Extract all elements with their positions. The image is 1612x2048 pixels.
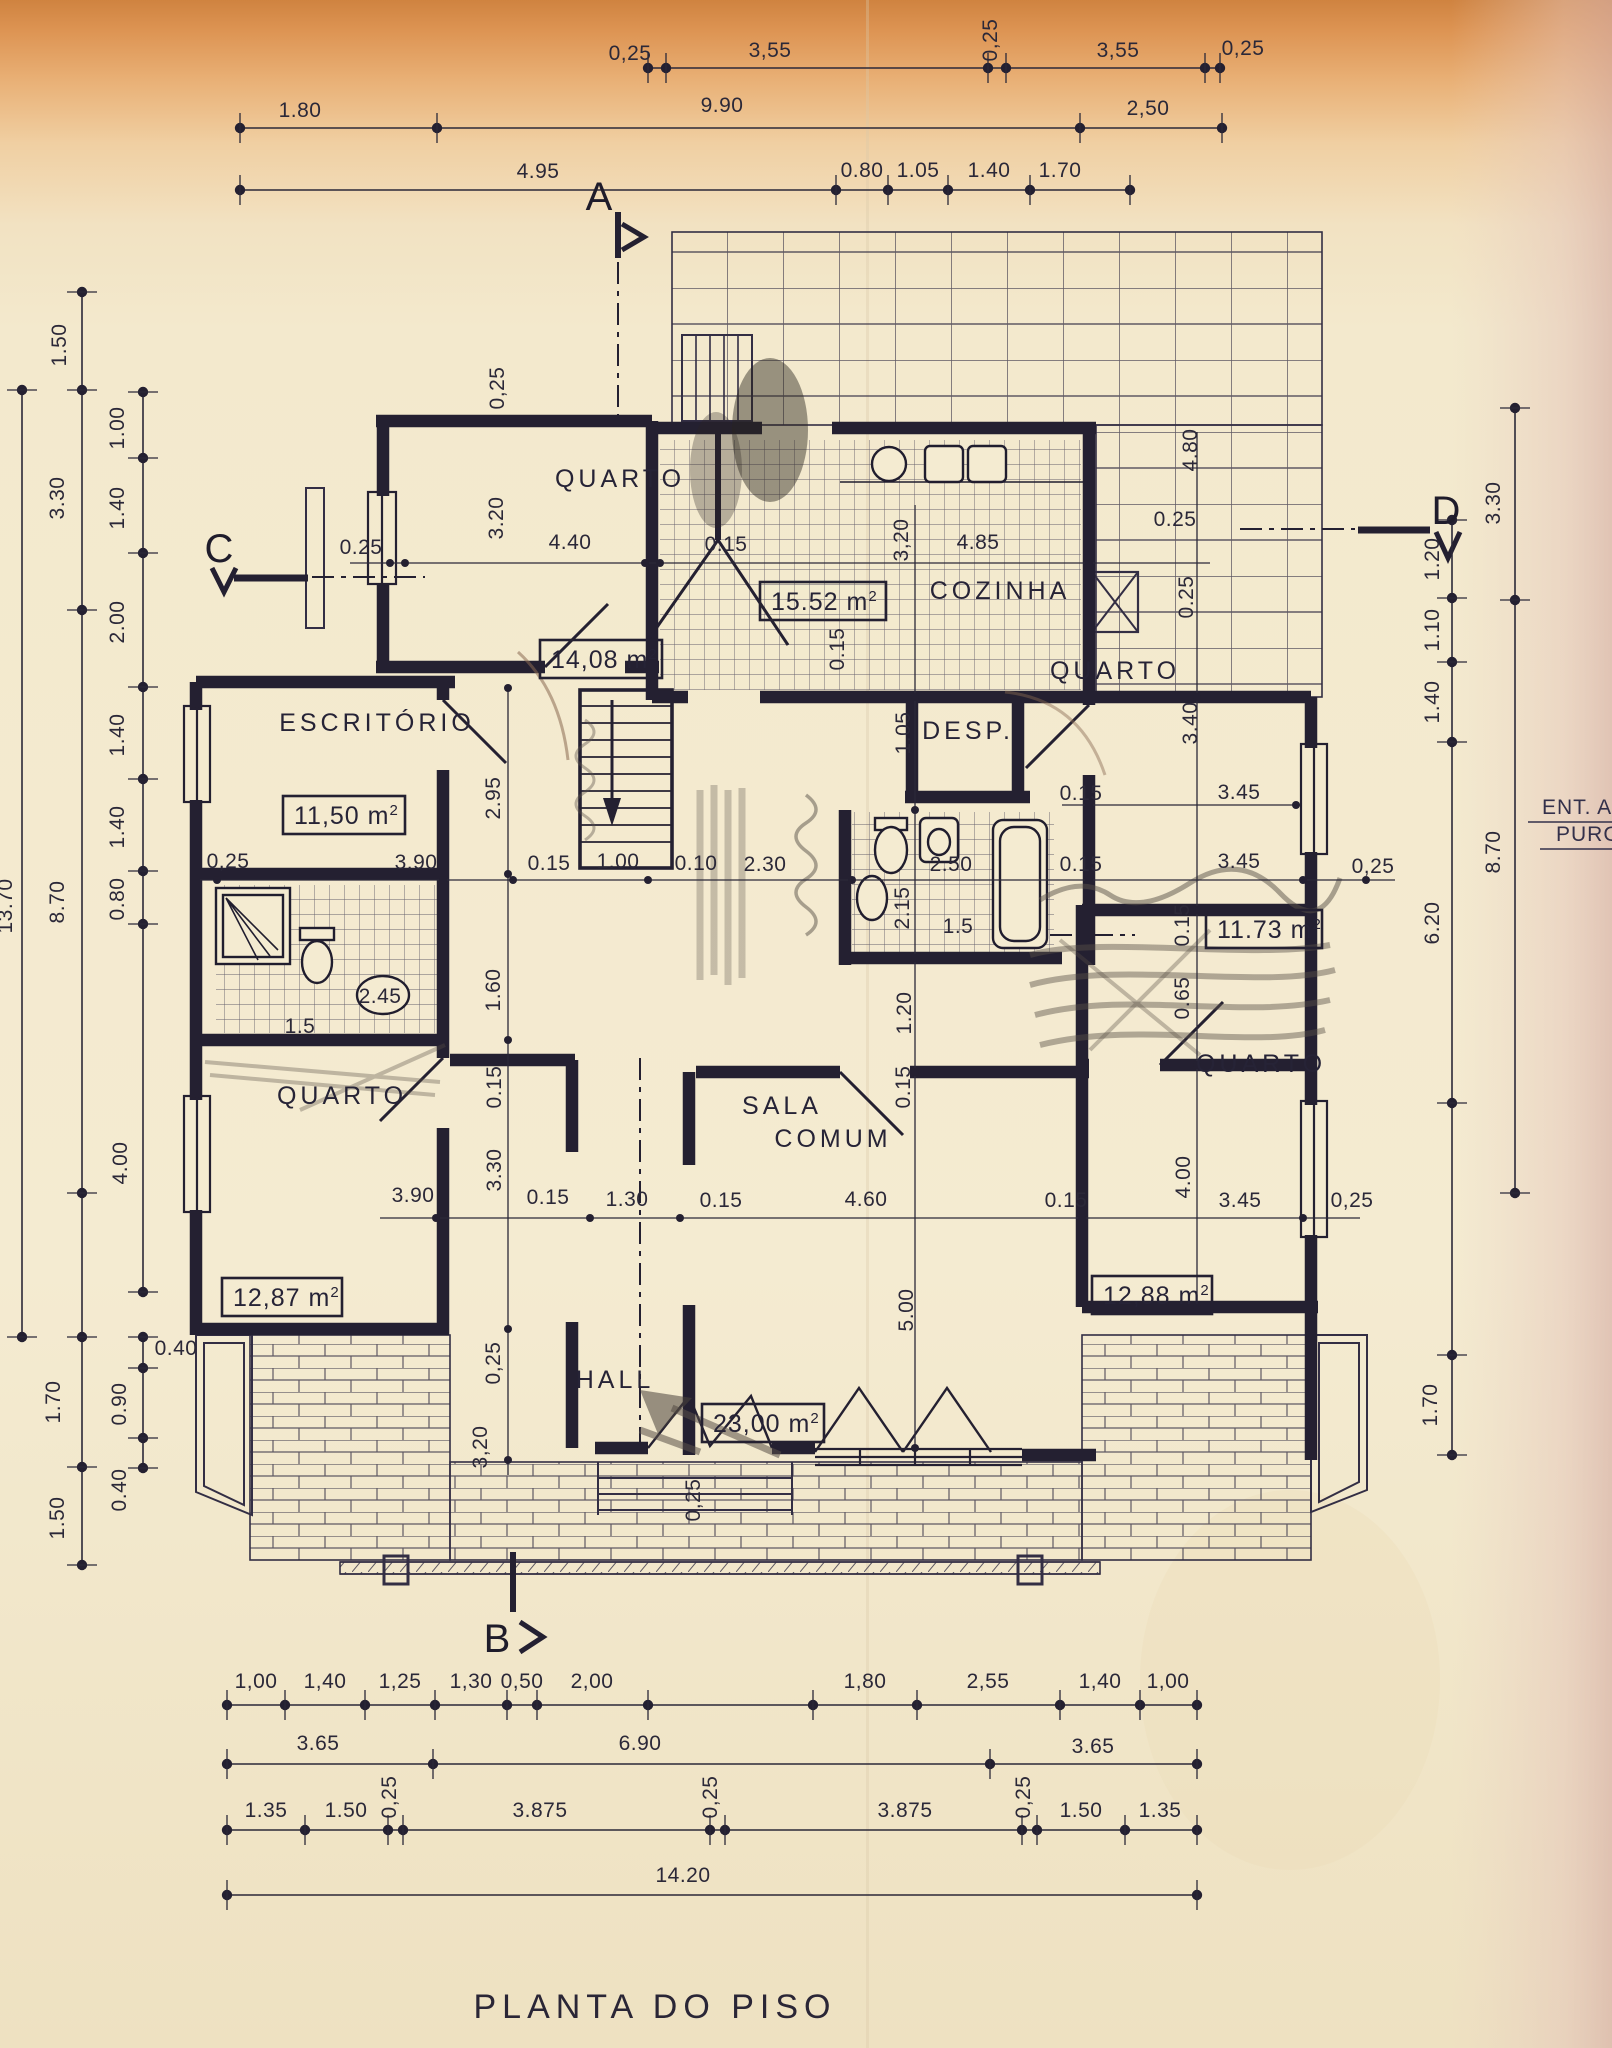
- dim-label: 8.70: [46, 881, 69, 924]
- dim-label: 6.20: [1421, 902, 1444, 945]
- dim-label: 13.70: [0, 878, 17, 933]
- dim-label: 3.65: [297, 1732, 340, 1755]
- dim-label: 3.45: [1218, 850, 1261, 873]
- dim-label: 0.80: [841, 159, 884, 182]
- area-label-quarto-br: 12,88 m2: [1092, 1276, 1212, 1314]
- dim-label: 4.60: [845, 1188, 888, 1211]
- svg-text:12,88 m2: 12,88 m2: [1103, 1282, 1210, 1310]
- dim-label: 2.15: [891, 887, 914, 930]
- dim-label: 3.30: [1482, 482, 1505, 525]
- washbasin-bowl: [928, 829, 950, 855]
- wc-bowl: [302, 941, 332, 983]
- dim-label: 1.20: [1421, 538, 1444, 581]
- dim-label: 0.15: [1045, 1189, 1088, 1212]
- dim-label: 1,25: [379, 1670, 422, 1693]
- area-label-escritorio: 11,50 m2: [283, 796, 405, 834]
- dim-label: 0,25: [1222, 37, 1265, 60]
- dim-label: 1.30: [606, 1188, 649, 1211]
- room-label-escritorio: ESCRITÓRIO: [279, 708, 475, 737]
- dim-label: 0.15: [1171, 904, 1194, 947]
- dim-label: 1.5: [285, 1015, 316, 1038]
- dim-label: 3.30: [483, 1149, 506, 1192]
- edge-note-line1: ENT. A: [1542, 796, 1612, 819]
- section-marker-a: A: [586, 175, 613, 219]
- dim-label: 0.25: [1154, 508, 1197, 531]
- stove-burner: [872, 447, 906, 481]
- dim-label: 0.40: [108, 1469, 131, 1512]
- room-label-hall: HALL: [576, 1366, 655, 1394]
- dim-label: 3.90: [392, 1184, 435, 1207]
- dim-label: 2.00: [106, 601, 129, 644]
- dim-label: 1,40: [1079, 1670, 1122, 1693]
- dim-label: 4.00: [1172, 1156, 1195, 1199]
- bathtub-inner: [1000, 827, 1040, 941]
- dim-label: 0.80: [106, 878, 129, 921]
- dim-label: 2.45: [359, 985, 402, 1008]
- dim-label: 0.90: [108, 1383, 131, 1426]
- room-label-quarto-tr: QUARTO: [1050, 657, 1180, 685]
- dim-label: 1.40: [106, 714, 129, 757]
- dim-label: 3.45: [1218, 781, 1261, 804]
- dim-label: 1,00: [1147, 1670, 1190, 1693]
- dim-label: 1.40: [1421, 681, 1444, 724]
- dim-label: 4.95: [517, 160, 560, 183]
- dim-label: 2.95: [482, 777, 505, 820]
- room-label-quarto-br: QUARTO: [1196, 1050, 1326, 1078]
- dim-label: 3.30: [46, 477, 69, 520]
- dim-label: 0,25: [482, 1342, 505, 1385]
- dim-label: 4.00: [109, 1142, 132, 1185]
- area-label-sala: 23,00 m2: [702, 1404, 824, 1442]
- dim-label: 6.90: [619, 1732, 662, 1755]
- dim-label: 8.70: [1482, 831, 1505, 874]
- dim-label: 3,55: [1097, 39, 1140, 62]
- dim-label: 3,20: [469, 1426, 492, 1469]
- left-porch-bricks: [250, 1335, 450, 1560]
- dim-label: 0,25: [609, 42, 652, 65]
- dim-label: 0.15: [483, 1066, 506, 1109]
- scanned-floor-plan-page: 0,253,550,253,550,251.809.902,504.950.80…: [0, 0, 1612, 2048]
- right-porch-bricks: [1082, 1335, 1311, 1560]
- dim-label: 3.875: [512, 1799, 567, 1822]
- dim-label: 3.20: [485, 497, 508, 540]
- dim-label: 0,25: [1012, 1776, 1035, 1819]
- svg-text:14,08 m2: 14,08 m2: [551, 646, 658, 674]
- dim-label: 1.40: [106, 487, 129, 530]
- dim-label: 1.5: [943, 915, 974, 938]
- dim-label: 1,30: [450, 1670, 493, 1693]
- wc-tank: [300, 928, 334, 940]
- dim-label: 1.80: [279, 99, 322, 122]
- dim-label: 0.10: [675, 852, 718, 875]
- dim-label: 3,20: [890, 519, 913, 562]
- dim-label: 3.90: [395, 851, 438, 874]
- svg-text:15.52 m2: 15.52 m2: [771, 588, 878, 616]
- sink-basin: [925, 446, 963, 482]
- svg-text:11.73 m2: 11.73 m2: [1217, 916, 1322, 944]
- dim-label: 4.80: [1179, 429, 1202, 472]
- sink-basin: [968, 446, 1006, 482]
- dim-label: 2.50: [930, 853, 973, 876]
- dim-label: 2,50: [1127, 97, 1170, 120]
- svg-text:23,00 m2: 23,00 m2: [713, 1410, 820, 1438]
- dim-label: 0,25: [1331, 1189, 1374, 1212]
- dim-label: 0.40: [155, 1337, 198, 1360]
- dim-label: 1,00: [235, 1670, 278, 1693]
- area-label-quarto-tl: 14,08 m2: [540, 640, 662, 678]
- dim-label: 4.40: [549, 531, 592, 554]
- dim-label: 2,55: [967, 1670, 1010, 1693]
- dim-label: 1,40: [304, 1670, 347, 1693]
- area-label-quarto-tr: 11.73 m2: [1206, 910, 1322, 948]
- dim-label: 1.50: [325, 1799, 368, 1822]
- dim-label: 3.40: [1179, 702, 1202, 745]
- dim-label: 0,25: [378, 1776, 401, 1819]
- dim-label: 0.65: [1171, 977, 1194, 1020]
- bidet: [857, 876, 887, 920]
- dim-label: 5.00: [895, 1289, 918, 1332]
- dim-label: 1.50: [1060, 1799, 1103, 1822]
- dim-label: 0.25: [340, 536, 383, 559]
- dim-label: 1.00: [597, 850, 640, 873]
- svg-text:11,50 m2: 11,50 m2: [294, 802, 399, 830]
- drawing-title: PLANTA DO PISO: [473, 1988, 836, 2026]
- dim-label: 14.20: [655, 1864, 710, 1887]
- dim-label: 4.85: [957, 531, 1000, 554]
- dim-label: 1.40: [106, 806, 129, 849]
- section-marker-c: C: [205, 527, 234, 571]
- dim-label: 0.15: [1060, 853, 1103, 876]
- dim-label: 1.70: [1419, 1384, 1442, 1427]
- dim-label: 0.15: [700, 1189, 743, 1212]
- dim-label: 0.15: [705, 533, 748, 556]
- room-label-sala-line1: SALA: [742, 1092, 822, 1120]
- dim-label: 1.05: [897, 159, 940, 182]
- edge-note-line2: PURG: [1556, 823, 1612, 846]
- dim-label: 1.40: [968, 159, 1011, 182]
- area-label-cozinha: 15.52 m2: [760, 582, 886, 620]
- dim-label: 1.70: [1039, 159, 1082, 182]
- dim-label: 1.35: [245, 1799, 288, 1822]
- area-label-quarto-bl: 12,87 m2: [222, 1278, 342, 1316]
- section-marker-b: B: [484, 1617, 511, 1661]
- dim-label: 0.15: [1060, 782, 1103, 805]
- dim-label: 0,25: [207, 850, 250, 873]
- dim-label: 0,25: [682, 1479, 705, 1522]
- svg-text:12,87 m2: 12,87 m2: [233, 1284, 340, 1312]
- dim-label: 0.25: [1175, 576, 1198, 619]
- wc-bowl: [875, 827, 907, 873]
- dim-label: 1.00: [106, 407, 129, 450]
- dim-label: 3.45: [1219, 1189, 1262, 1212]
- room-label-cozinha: COZINHA: [930, 577, 1071, 605]
- dim-label: 3,55: [749, 39, 792, 62]
- dim-label: 0,50: [501, 1670, 544, 1693]
- dim-label: 1.20: [893, 992, 916, 1035]
- dim-label: 2.30: [744, 853, 787, 876]
- dim-label: 1,80: [844, 1670, 887, 1693]
- section-marker-d: D: [1432, 489, 1461, 533]
- dim-label: 0.15: [527, 1186, 570, 1209]
- dim-label: 0.15: [826, 628, 849, 671]
- room-label-quarto-bl: QUARTO: [277, 1082, 407, 1110]
- dim-label: 0.15: [892, 1066, 915, 1109]
- dim-label: 1.60: [482, 969, 505, 1012]
- dim-label: 1.35: [1139, 1799, 1182, 1822]
- dim-label: 2,00: [571, 1670, 614, 1693]
- dim-label: 0,25: [486, 367, 509, 410]
- dim-label: 1.10: [1421, 609, 1444, 652]
- floor-plan-drawing: 0,253,550,253,550,251.809.902,504.950.80…: [0, 0, 1612, 2048]
- room-label-quarto-tl: QUARTO: [555, 465, 685, 493]
- dim-label: 1.50: [48, 324, 71, 367]
- dim-label: 0,25: [699, 1776, 722, 1819]
- room-label-sala-line2: COMUM: [774, 1125, 891, 1153]
- dim-label: 1.50: [46, 1497, 69, 1540]
- dim-label: 3.875: [877, 1799, 932, 1822]
- dim-label: 0,25: [979, 19, 1002, 62]
- dim-label: 1.70: [42, 1381, 65, 1424]
- room-label-desp: DESP.: [922, 717, 1014, 745]
- dim-label: 0.15: [528, 852, 571, 875]
- dim-label: 3.65: [1072, 1735, 1115, 1758]
- dim-label: 9.90: [701, 94, 744, 117]
- terrace-front-edge: [340, 1562, 1100, 1574]
- dim-label: 1.05: [892, 712, 915, 755]
- dim-label: 0,25: [1352, 855, 1395, 878]
